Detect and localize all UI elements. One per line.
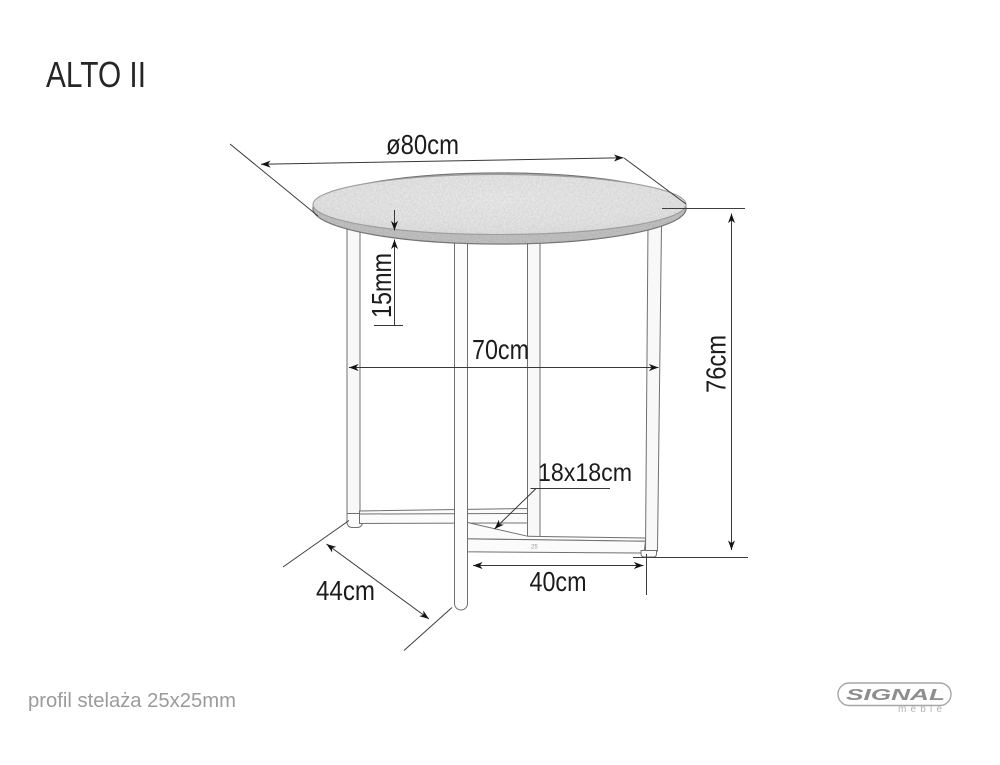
svg-text:meble: meble [898,704,942,715]
svg-text:76cm: 76cm [701,335,732,393]
svg-text:ALTO II: ALTO II [46,54,146,95]
svg-text:SIGNAL: SIGNAL [846,687,945,704]
svg-text:44cm: 44cm [316,575,375,606]
svg-text:40cm: 40cm [530,566,587,597]
svg-text:ø80cm: ø80cm [386,129,459,160]
svg-text:70cm: 70cm [472,334,529,365]
svg-text:25: 25 [531,545,538,551]
svg-text:18x18cm: 18x18cm [538,459,632,487]
svg-text:profil stelaża 25x25mm: profil stelaża 25x25mm [28,690,236,712]
svg-text:15mm: 15mm [366,253,397,318]
